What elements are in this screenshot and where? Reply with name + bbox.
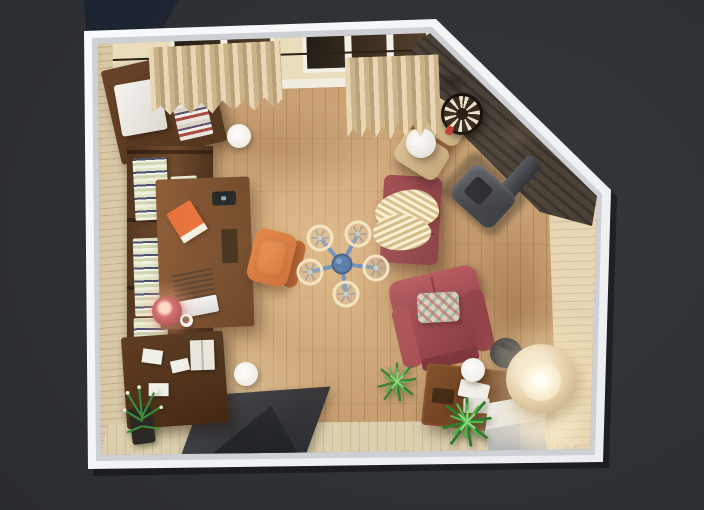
orange-book[interactable] (166, 200, 208, 244)
cup[interactable] (180, 314, 193, 327)
floor-lamp[interactable] (506, 344, 576, 418)
ceiling-fan[interactable] (294, 218, 394, 312)
floor-light[interactable] (234, 362, 258, 386)
throw-pillow[interactable] (417, 291, 461, 323)
floorplan-render (0, 0, 704, 510)
spiky-plant[interactable] (374, 356, 420, 408)
open-magazine (190, 340, 215, 371)
smartphone[interactable] (212, 191, 236, 206)
desk-organizer (221, 229, 238, 264)
lamp-bulb (534, 374, 548, 388)
spiky-plant[interactable] (438, 390, 496, 454)
desk-lamp[interactable] (152, 296, 182, 326)
floor-light[interactable] (227, 124, 251, 148)
floor-light[interactable] (461, 358, 485, 382)
paper (141, 348, 163, 365)
flower-plant[interactable] (118, 378, 166, 450)
stove-door (463, 175, 494, 206)
paper (170, 358, 190, 374)
